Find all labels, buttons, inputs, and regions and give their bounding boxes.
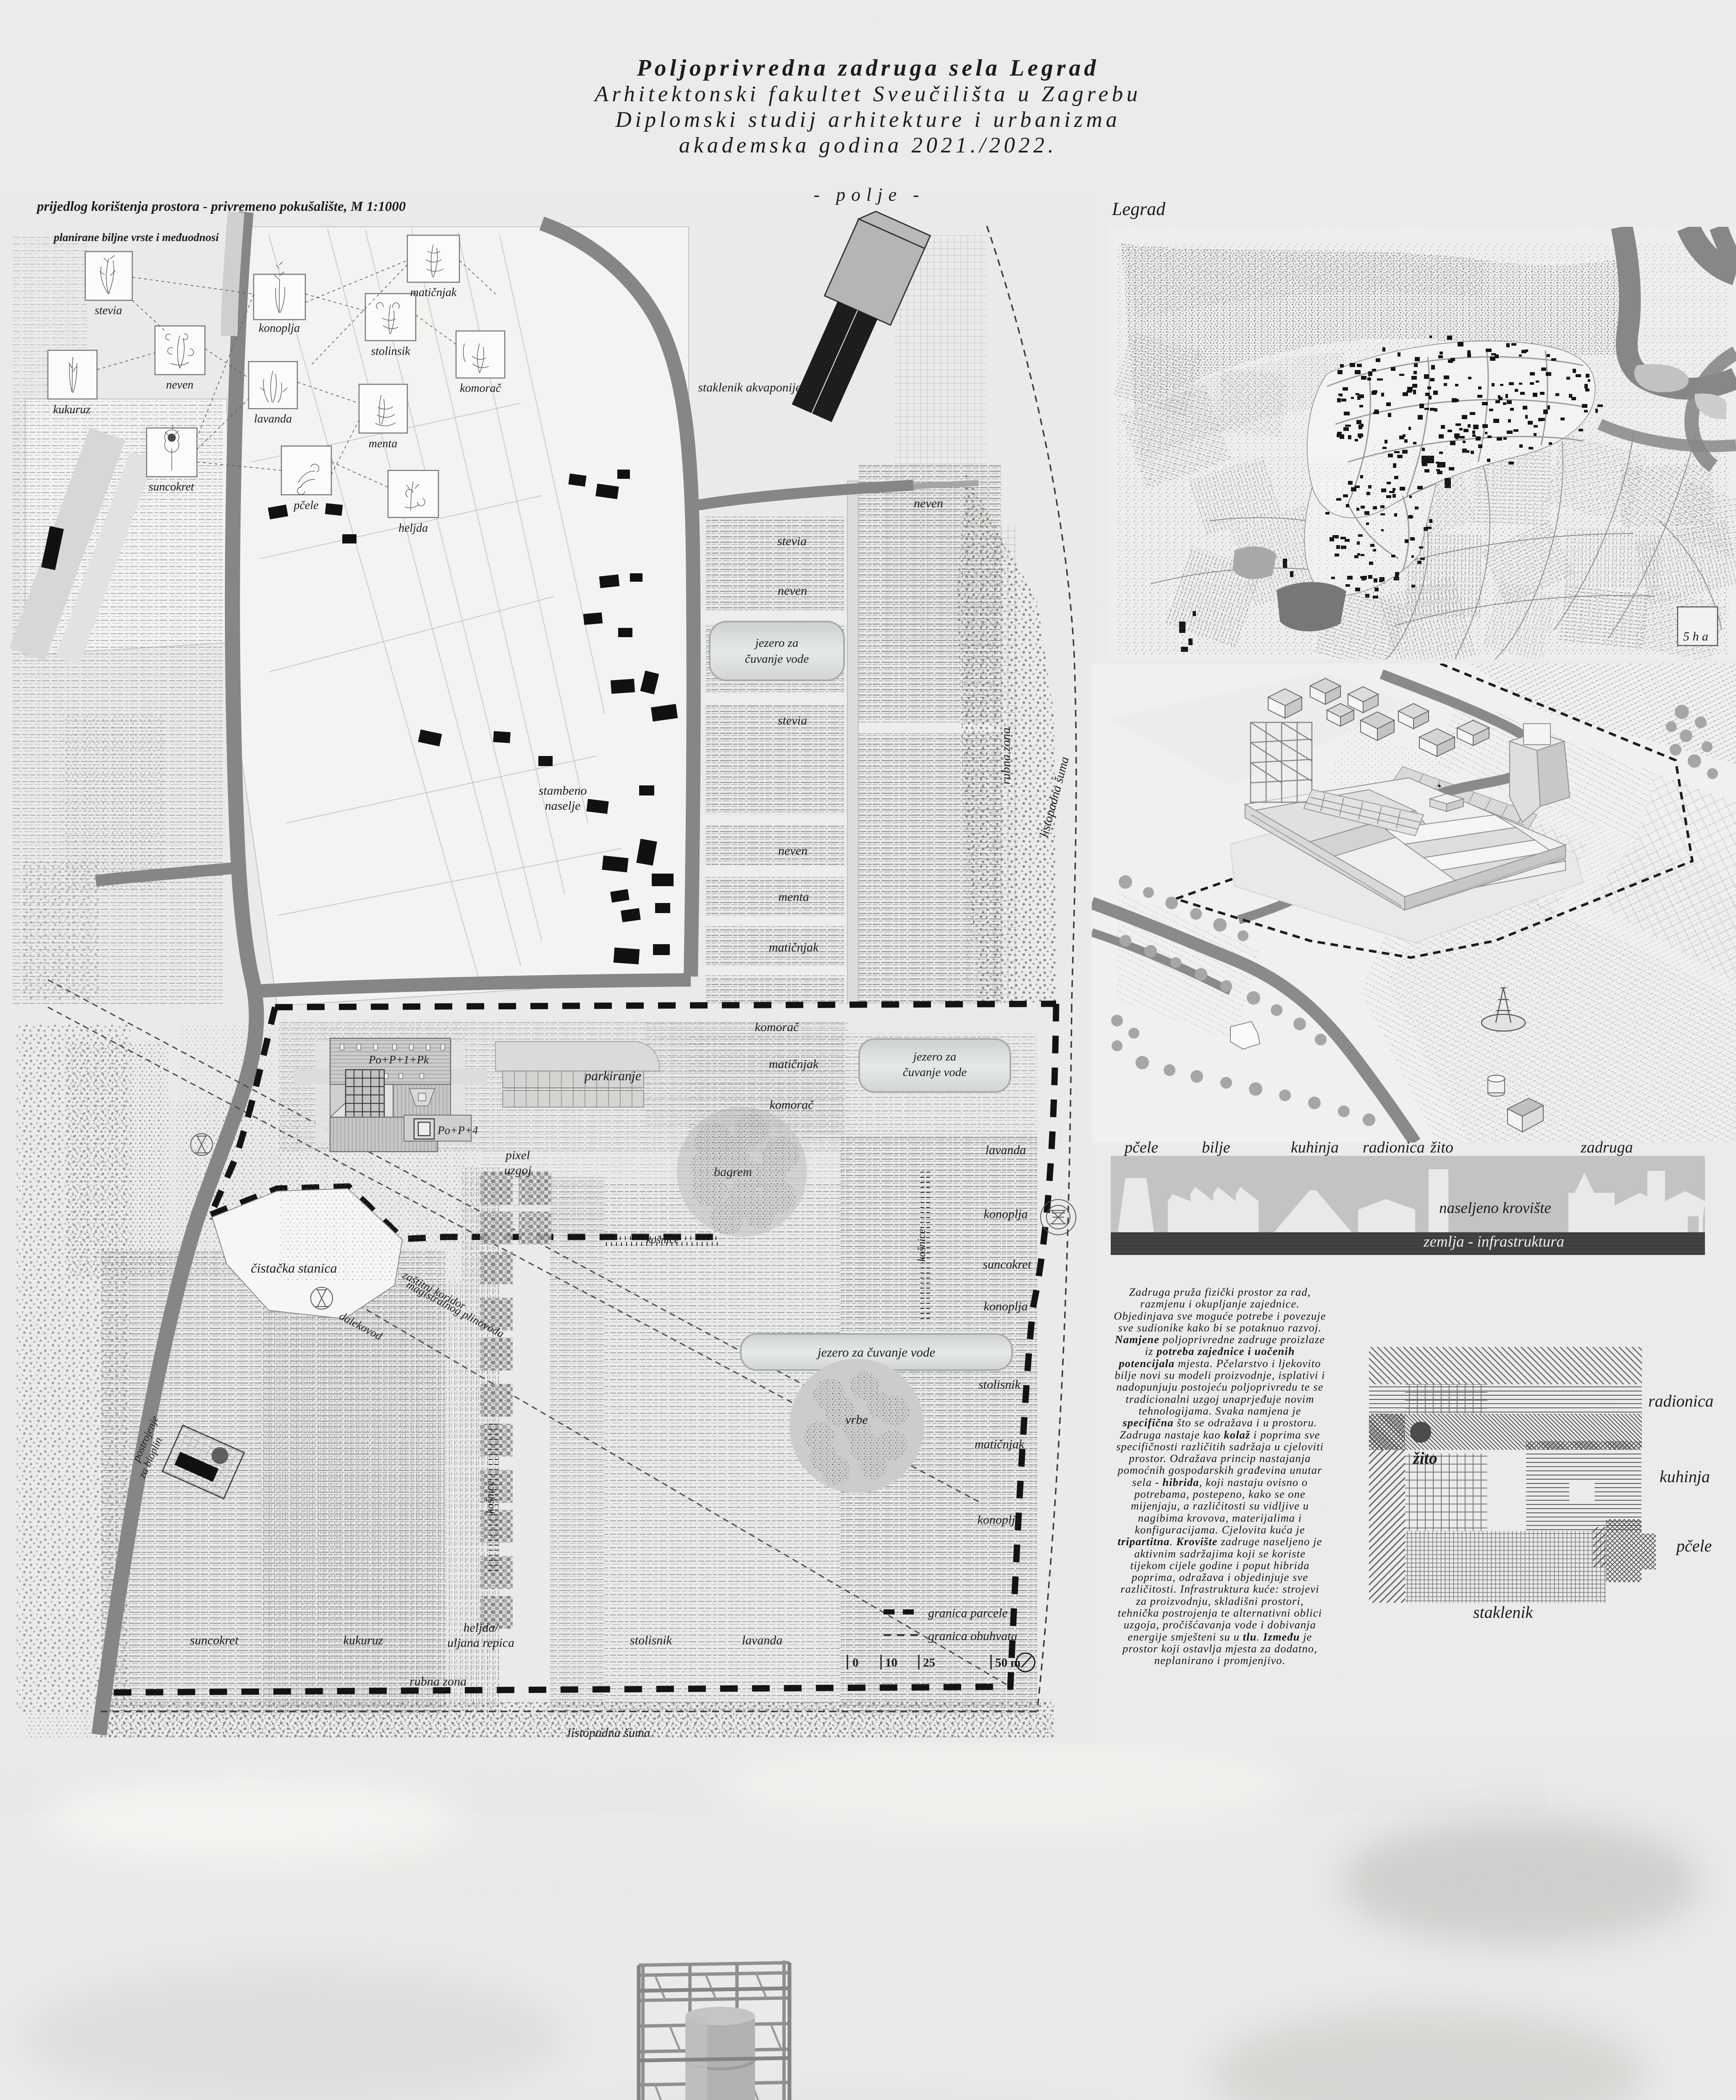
svg-text:5 h a: 5 h a xyxy=(1683,630,1708,643)
svg-text:lavanda: lavanda xyxy=(986,1143,1026,1157)
svg-text:staklenik akvaponije: staklenik akvaponije xyxy=(698,381,801,394)
svg-text:menta: menta xyxy=(369,437,397,450)
svg-text:neven: neven xyxy=(778,844,808,858)
svg-text:parkiranje: parkiranje xyxy=(584,1068,641,1083)
svg-text:pčele: pčele xyxy=(293,499,318,512)
svg-text:stolisnik: stolisnik xyxy=(978,1378,1021,1391)
svg-text:kukuruz: kukuruz xyxy=(53,403,91,416)
svg-text:radionica: radionica xyxy=(1648,1391,1714,1410)
svg-text:stolisnik: stolisnik xyxy=(630,1633,672,1647)
svg-text:neven: neven xyxy=(778,584,807,598)
svg-text:listopadna šuma: listopadna šuma xyxy=(567,1726,650,1740)
svg-text:heljda/: heljda/ xyxy=(463,1621,499,1635)
svg-text:konoplja: konoplja xyxy=(259,322,300,335)
svg-text:naseljeno krovište: naseljeno krovište xyxy=(1439,1200,1551,1217)
svg-text:naselje: naselje xyxy=(545,799,581,813)
svg-text:neven: neven xyxy=(914,496,943,510)
svg-text:jezero za: jezero za xyxy=(754,636,799,650)
svg-text:granica obuhvata: granica obuhvata xyxy=(928,1629,1017,1643)
svg-text:25: 25 xyxy=(923,1656,935,1669)
svg-text:matičnjak: matičnjak xyxy=(769,940,819,954)
svg-text:stevia: stevia xyxy=(778,714,807,727)
svg-text:stevia: stevia xyxy=(94,304,122,317)
svg-text:košnice: košnice xyxy=(915,1229,928,1262)
svg-text:granica parcele: granica parcele xyxy=(928,1606,1008,1620)
svg-text:suncokret: suncokret xyxy=(149,480,194,493)
svg-text:vrbe: vrbe xyxy=(845,1413,868,1427)
svg-text:konoplja: konoplja xyxy=(984,1207,1028,1221)
svg-text:staklenik: staklenik xyxy=(1473,1603,1533,1622)
svg-text:komorač: komorač xyxy=(755,1020,800,1034)
svg-text:kuhinja: kuhinja xyxy=(1660,1467,1710,1486)
svg-text:uljana repica: uljana repica xyxy=(447,1636,514,1650)
svg-text:žito: žito xyxy=(1412,1449,1437,1467)
svg-text:10: 10 xyxy=(885,1656,897,1669)
svg-text:Po+P+4: Po+P+4 xyxy=(437,1124,478,1137)
svg-text:pixel: pixel xyxy=(505,1148,530,1162)
svg-text:konoplja: konoplja xyxy=(984,1299,1028,1313)
svg-text:suncokret: suncokret xyxy=(190,1633,239,1647)
svg-text:jezero za čuvanje vode: jezero za čuvanje vode xyxy=(816,1345,936,1360)
svg-text:lavanda: lavanda xyxy=(254,412,292,425)
svg-text:matičnjak: matičnjak xyxy=(769,1057,819,1071)
svg-text:neven: neven xyxy=(166,378,193,391)
svg-text:planirane biljne vrste i međuo: planirane biljne vrste i međuodnosi xyxy=(53,231,219,244)
svg-text:suncokret: suncokret xyxy=(983,1257,1031,1271)
svg-text:0: 0 xyxy=(852,1656,859,1669)
svg-text:heljda: heljda xyxy=(399,522,428,535)
svg-text:zemlja - infrastruktura: zemlja - infrastruktura xyxy=(1423,1233,1564,1250)
svg-text:matičnjak: matičnjak xyxy=(410,286,457,299)
svg-text:čuvanje vode: čuvanje vode xyxy=(745,652,809,666)
svg-text:kukuruz: kukuruz xyxy=(344,1633,383,1647)
svg-text:menta: menta xyxy=(778,890,809,904)
svg-text:matičnjak: matičnjak xyxy=(975,1437,1025,1451)
svg-text:košnice: košnice xyxy=(484,1481,496,1514)
svg-text:rubna zona: rubna zona xyxy=(409,1675,467,1688)
svg-text:komorač: komorač xyxy=(770,1098,815,1112)
svg-text:košnice: košnice xyxy=(646,1234,679,1246)
svg-text:stambeno: stambeno xyxy=(539,784,587,798)
svg-text:stevia: stevia xyxy=(777,534,807,548)
svg-text:Po+P+1+Pk: Po+P+1+Pk xyxy=(368,1053,429,1066)
svg-text:uzgoj: uzgoj xyxy=(504,1163,531,1177)
svg-text:prijedlog korištenja prostora: prijedlog korištenja prostora - privreme… xyxy=(36,199,406,214)
svg-text:rubna zona: rubna zona xyxy=(999,727,1013,785)
svg-text:komorač: komorač xyxy=(460,382,502,395)
svg-text:pčele: pčele xyxy=(1675,1536,1712,1555)
svg-text:čuvanje vode: čuvanje vode xyxy=(903,1066,967,1079)
svg-text:konoplja: konoplja xyxy=(978,1513,1022,1527)
svg-text:stolinsik: stolinsik xyxy=(371,345,410,358)
svg-text:lavanda: lavanda xyxy=(742,1633,783,1647)
svg-text:jezero za: jezero za xyxy=(912,1050,957,1063)
